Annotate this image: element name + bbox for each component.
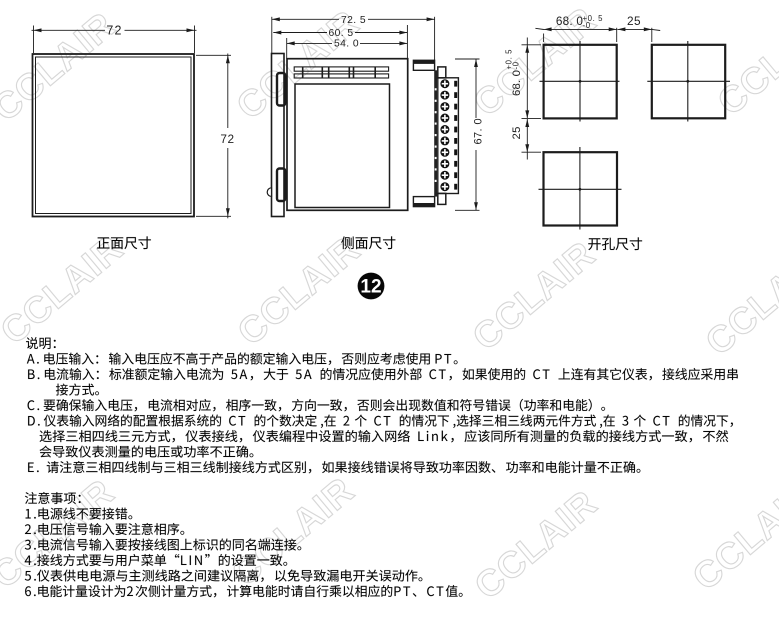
svg-text:68. 0: 68. 0 — [556, 14, 583, 28]
svg-text:25: 25 — [627, 14, 641, 28]
svg-text:12: 12 — [360, 277, 381, 298]
svg-text:25: 25 — [511, 126, 523, 139]
svg-text:-0: -0 — [512, 61, 521, 69]
svg-text:67. 0: 67. 0 — [473, 118, 485, 144]
svg-text:68. 0: 68. 0 — [511, 70, 523, 96]
svg-text:60. 5: 60. 5 — [329, 28, 354, 39]
svg-text:54. 0: 54. 0 — [334, 39, 359, 50]
svg-text:72. 5: 72. 5 — [341, 15, 366, 26]
svg-text:72: 72 — [220, 132, 234, 146]
svg-text:72: 72 — [106, 23, 122, 37]
svg-text:-0: -0 — [583, 21, 591, 30]
